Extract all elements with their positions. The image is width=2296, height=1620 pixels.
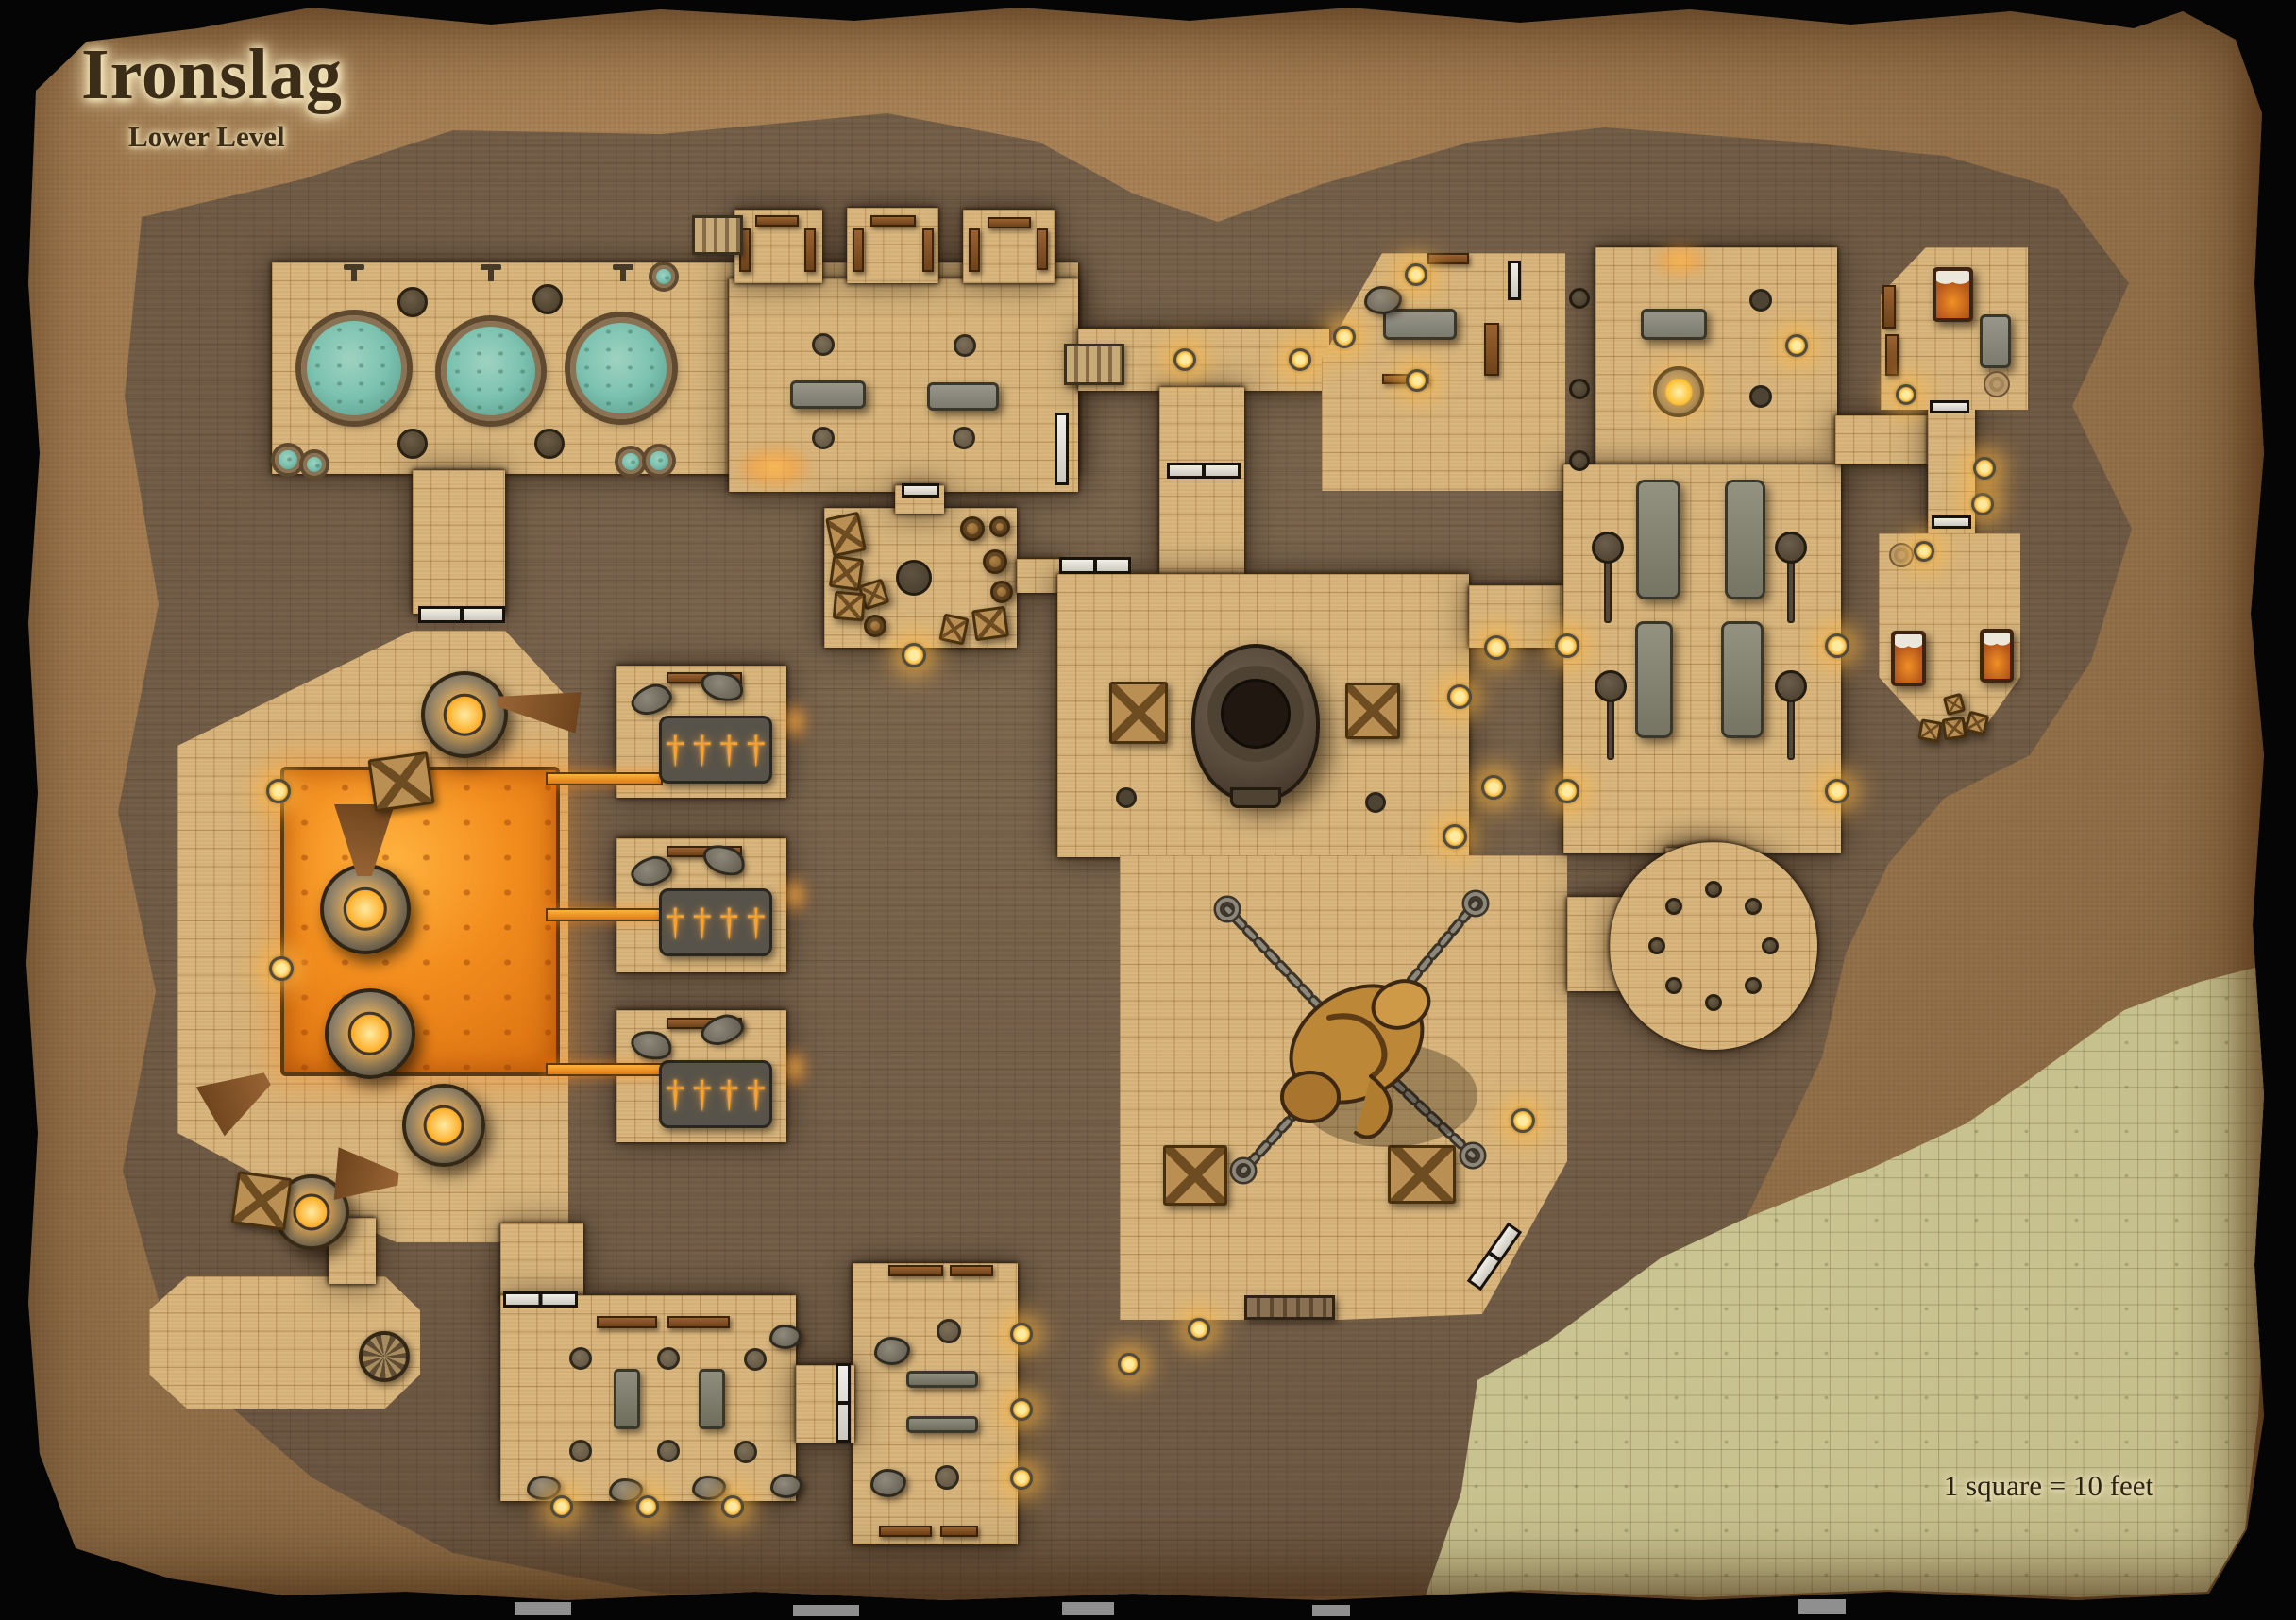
- sword-mold: ††††: [659, 716, 772, 784]
- floor-shaft-room: [1610, 842, 1817, 1050]
- door: [836, 1363, 851, 1443]
- torn-edge-artifact: [1798, 1599, 1846, 1614]
- furnace-dome: [402, 1084, 485, 1167]
- floor-pool-corridor: [413, 470, 505, 614]
- crate-icon: [1942, 716, 1967, 740]
- map-scale-label: 1 square = 10 feet: [1850, 1469, 2247, 1503]
- door: [1508, 261, 1521, 300]
- stone-slab-bed: [1635, 621, 1673, 738]
- stool: [937, 1319, 961, 1343]
- ironslag-lower-level-map: †††††††††††† Ironslag Lower Level 1 squa…: [0, 0, 2296, 1620]
- torch-stand-icon: [1787, 533, 1795, 623]
- glowing-sword-icon: †: [693, 1075, 712, 1113]
- gargoyle-statue-icon: [770, 1474, 802, 1498]
- wall-lamp-icon: [1511, 1108, 1535, 1133]
- furnace-dome: [320, 864, 411, 954]
- wall-lamp-icon: [1555, 779, 1579, 803]
- wood-shelf: [804, 228, 816, 272]
- glowing-sword-icon: †: [747, 1075, 766, 1113]
- floor-hole: [534, 429, 565, 459]
- furnace-fire-glow: [293, 1193, 329, 1230]
- tap-stem: [620, 270, 626, 281]
- wall-lamp-icon: [1484, 635, 1509, 660]
- wood-shelf: [950, 1265, 993, 1276]
- stone-pillar: [1569, 379, 1590, 399]
- wood-shelf: [1882, 285, 1896, 329]
- bench: [906, 1416, 978, 1433]
- wall-lamp-icon: [1010, 1467, 1033, 1490]
- wall-lamp-icon: [1973, 457, 1996, 480]
- glowing-sword-icon: †: [666, 731, 684, 768]
- stone-table: [790, 380, 866, 409]
- stone-pillar: [896, 560, 932, 596]
- floor-hole: [1745, 898, 1762, 915]
- fire-glow: [782, 1047, 808, 1088]
- post-hole: [1116, 787, 1137, 808]
- kiln-vent: [1230, 787, 1281, 808]
- giant-bed: [1980, 629, 2014, 683]
- wall-lamp-icon: [1010, 1398, 1033, 1421]
- wall-lamp-icon: [1188, 1318, 1210, 1341]
- stool: [569, 1347, 592, 1370]
- post-hole: [1749, 385, 1772, 408]
- door: [1932, 515, 1971, 529]
- wood-shelf: [870, 215, 916, 227]
- stone-slab-bed: [1636, 480, 1680, 599]
- wood-shelf: [1885, 334, 1899, 376]
- small-water-basin: [303, 453, 326, 476]
- map-subtitle: Lower Level: [128, 120, 343, 154]
- wood-shelf: [1037, 228, 1048, 270]
- gargoyle-statue-icon: [769, 1325, 802, 1349]
- torch-stand-icon: [1607, 672, 1614, 760]
- torn-edge-artifact: [793, 1605, 859, 1616]
- floor-roomA-corridor: [500, 1223, 583, 1301]
- stone-table: [1383, 309, 1457, 340]
- floor-pass-storage-hall: [1017, 559, 1062, 593]
- floor-kitchen-right: [1595, 247, 1837, 500]
- wood-shelf: [853, 228, 864, 272]
- wall-lamp-icon: [1173, 348, 1196, 371]
- glowing-sword-icon: †: [747, 903, 766, 941]
- crate-icon: [1965, 711, 1990, 736]
- glowing-sword-icon: †: [747, 731, 766, 768]
- door: [902, 483, 939, 498]
- crate-icon: [230, 1171, 292, 1231]
- wall-lamp-icon: [902, 643, 926, 667]
- bench: [906, 1371, 978, 1388]
- map-title: Ironslag: [81, 34, 343, 116]
- barrel-icon: [983, 549, 1007, 574]
- wood-shelf: [597, 1316, 657, 1328]
- stool: [744, 1348, 767, 1371]
- wall-lamp-icon: [1971, 493, 1994, 515]
- stone-pillar: [1569, 288, 1590, 309]
- floor-hole: [397, 429, 428, 459]
- floor-hole: [1665, 977, 1682, 994]
- floor-hole: [1705, 994, 1722, 1011]
- water-pool: [570, 317, 672, 419]
- crate-icon: [1163, 1145, 1227, 1206]
- wall-lamp-icon: [1289, 348, 1311, 371]
- barrel-icon: [864, 615, 886, 637]
- torn-edge-artifact: [515, 1602, 571, 1615]
- stool: [657, 1347, 680, 1370]
- glowing-sword-icon: †: [719, 903, 738, 941]
- map-title-block: Ironslag Lower Level: [81, 34, 343, 154]
- wall-lamp-icon: [1118, 1353, 1140, 1375]
- water-tap-icon: [344, 264, 364, 270]
- floor-hall-link-east: [1469, 585, 1565, 648]
- floor-barracks: [1563, 464, 1841, 853]
- floor-hole: [1665, 898, 1682, 915]
- stairs-icon: [1064, 344, 1124, 385]
- crate-icon: [1345, 683, 1400, 739]
- door: [1055, 413, 1069, 485]
- stairs-icon: [692, 215, 743, 255]
- wood-shelf: [1484, 323, 1499, 376]
- wall-lamp-icon: [1010, 1323, 1033, 1345]
- furnace-dome: [421, 671, 508, 758]
- wood-shelf: [888, 1265, 943, 1276]
- tap-stem: [488, 270, 494, 281]
- forge-kiln: [1191, 644, 1320, 802]
- post-hole: [1749, 289, 1772, 312]
- rug: [1984, 371, 2010, 397]
- stool: [812, 333, 835, 356]
- sword-mold: ††††: [659, 888, 772, 956]
- wall-lamp-icon: [1406, 369, 1428, 392]
- wood-shelf: [969, 228, 980, 272]
- stool: [935, 1465, 959, 1490]
- floor-roomB: [853, 1263, 1018, 1544]
- door: [1167, 463, 1241, 479]
- wall-lamp-icon: [1785, 334, 1808, 357]
- tap-stem: [351, 270, 357, 281]
- stool: [812, 427, 835, 449]
- wall-lamp-icon: [269, 956, 294, 981]
- furnace-fire-glow: [424, 1105, 464, 1146]
- stone-pillar: [1569, 450, 1590, 471]
- stone-table: [1641, 309, 1707, 340]
- parchment-background: †††††††††††† Ironslag Lower Level 1 squa…: [0, 0, 2296, 1620]
- stone-slab-bed: [1725, 480, 1765, 599]
- wood-shelf: [988, 217, 1031, 228]
- fire-glow: [1652, 244, 1709, 278]
- door: [418, 606, 505, 623]
- door: [1059, 557, 1131, 574]
- stone-table: [927, 382, 999, 411]
- post-hole: [1365, 792, 1386, 813]
- water-pool: [301, 315, 407, 421]
- fire-pit: [1653, 366, 1704, 417]
- glowing-sword-icon: †: [693, 731, 712, 768]
- wood-shelf: [940, 1526, 978, 1537]
- furnace-fire-glow: [348, 1012, 392, 1055]
- wood-shelf: [922, 228, 934, 272]
- spiral-staircase-icon: [359, 1331, 410, 1382]
- wall-lamp-icon: [1443, 824, 1467, 849]
- crate-icon: [367, 751, 434, 812]
- floor-hole: [1745, 977, 1762, 994]
- stool: [734, 1441, 757, 1463]
- wall-lamp-icon: [1825, 779, 1849, 803]
- wall-lamp-icon: [1405, 263, 1427, 286]
- stool: [657, 1440, 680, 1462]
- door: [503, 1291, 578, 1308]
- crate-icon: [833, 591, 866, 622]
- floor-north-corridor: [1159, 387, 1244, 578]
- kiln-opening: [1207, 666, 1304, 762]
- fire-glow: [782, 874, 808, 916]
- floor-kitchen-left: [1322, 253, 1565, 491]
- floor-hole: [532, 284, 563, 314]
- floor-hole: [1705, 881, 1722, 898]
- bench: [699, 1369, 725, 1429]
- barrel-icon: [989, 516, 1010, 537]
- rug: [1889, 543, 1914, 567]
- floor-hole: [397, 287, 428, 317]
- torn-edge-artifact: [1312, 1605, 1350, 1616]
- glowing-sword-icon: †: [693, 903, 712, 941]
- crate-icon: [1917, 718, 1942, 743]
- wall-lamp-icon: [721, 1495, 744, 1518]
- glowing-sword-icon: †: [719, 731, 738, 768]
- door: [1930, 400, 1969, 413]
- floor-bed-link: [1835, 415, 1932, 464]
- small-water-basin: [652, 265, 675, 288]
- bench: [614, 1369, 640, 1429]
- lava-channel: [546, 772, 663, 785]
- water-tap-icon: [613, 264, 633, 270]
- torch-stand-icon: [1604, 533, 1612, 623]
- wood-shelf: [667, 1316, 730, 1328]
- glowing-sword-icon: †: [666, 903, 684, 941]
- furnace-fire-glow: [344, 887, 387, 931]
- torn-edge-artifact: [1062, 1602, 1114, 1615]
- torch-stand-head: [1595, 670, 1627, 702]
- floor-hole: [1648, 937, 1665, 954]
- stone-slab-bed: [1721, 621, 1764, 738]
- stool: [953, 427, 975, 449]
- stool: [569, 1440, 592, 1462]
- stool: [954, 334, 976, 357]
- wood-shelf: [755, 215, 799, 227]
- small-water-basin: [646, 447, 672, 474]
- torch-stand-head: [1592, 532, 1624, 564]
- crate-icon: [1388, 1145, 1456, 1204]
- wall-lamp-icon: [1481, 775, 1506, 800]
- wall-lamp-icon: [1333, 326, 1356, 348]
- sword-mold: ††††: [659, 1060, 772, 1128]
- furnace-fire-glow: [444, 694, 486, 736]
- wall-lamp-icon: [1555, 633, 1579, 658]
- small-water-basin: [618, 449, 643, 474]
- torch-stand-head: [1775, 670, 1807, 702]
- small-water-basin: [275, 447, 301, 473]
- lava-channel: [546, 1063, 663, 1076]
- torch-stand-icon: [1787, 672, 1795, 760]
- crate-icon: [971, 606, 1009, 642]
- wall-lamp-icon: [636, 1495, 659, 1518]
- lava-channel: [546, 908, 663, 921]
- barrel-icon: [990, 581, 1013, 603]
- floor-hole: [1762, 937, 1779, 954]
- glowing-sword-icon: †: [719, 1075, 738, 1113]
- wall-lamp-icon: [266, 779, 291, 803]
- glowing-sword-icon: †: [666, 1075, 684, 1113]
- wall-lamp-icon: [1896, 384, 1916, 405]
- fire-glow: [782, 700, 808, 742]
- wall-lamp-icon: [1825, 633, 1849, 658]
- torch-stand-head: [1775, 532, 1807, 564]
- wall-lamp-icon: [1447, 684, 1472, 709]
- barrel-icon: [960, 516, 985, 541]
- water-pool: [441, 321, 541, 421]
- giant-bed: [1891, 631, 1926, 686]
- wood-bench: [1244, 1295, 1335, 1320]
- wood-shelf: [879, 1526, 932, 1537]
- water-tap-icon: [481, 264, 501, 270]
- fire-glow: [734, 446, 815, 489]
- wall-lamp-icon: [550, 1495, 573, 1518]
- wood-shelf: [1427, 253, 1469, 264]
- furnace-dome: [325, 988, 415, 1079]
- giant-bed: [1933, 267, 1973, 322]
- stone-table: [1980, 314, 2011, 368]
- map-layer: ††††††††††††: [0, 0, 2296, 1620]
- fire-glow: [1665, 379, 1693, 406]
- crate-icon: [1109, 682, 1168, 744]
- wall-lamp-icon: [1914, 541, 1934, 562]
